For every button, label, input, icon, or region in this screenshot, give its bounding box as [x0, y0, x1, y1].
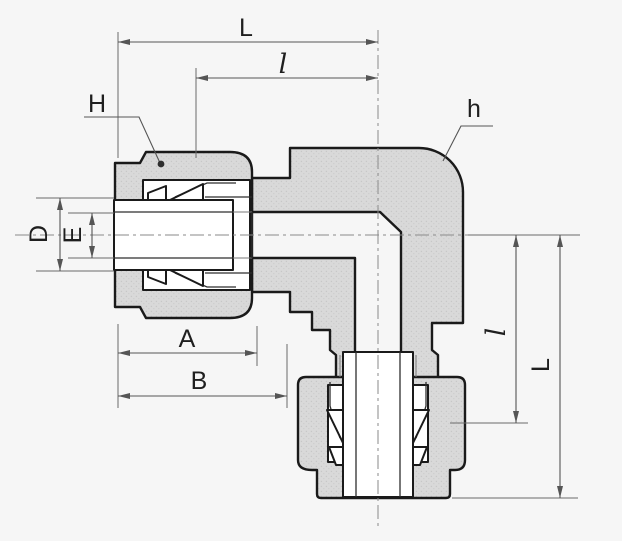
arrow-E-top [89, 213, 95, 225]
label-H: H [88, 90, 106, 118]
label-L-right: L [527, 358, 555, 372]
label-L-top: L [239, 14, 253, 42]
arrow-E-bottom [89, 246, 95, 258]
arrow-L-right-bottom [557, 486, 563, 498]
fitting-body-group [114, 148, 465, 498]
arrow-L-left [118, 39, 130, 45]
leader-h-line [443, 126, 493, 161]
drawing-canvas: L l H h D E A B l L [0, 0, 622, 541]
label-l-top: l [279, 49, 288, 80]
arrow-D-top [57, 198, 63, 210]
label-h: h [467, 95, 481, 123]
label-B: B [191, 367, 208, 395]
fitting-diagram: L l H h D E A B l L [0, 0, 622, 541]
arrow-l-right [366, 75, 378, 81]
leader-h [443, 126, 493, 161]
arrow-A-left [118, 350, 130, 356]
arrow-D-bottom [57, 259, 63, 271]
label-l-right: l [481, 328, 512, 337]
arrow-l-right-bottom [513, 411, 519, 423]
label-E: E [59, 227, 87, 244]
leader-H-dot [158, 161, 165, 168]
arrow-A-right [245, 350, 257, 356]
arrow-B-left [118, 393, 130, 399]
arrow-B-right [275, 393, 287, 399]
label-D: D [25, 225, 53, 243]
arrow-L-right [366, 39, 378, 45]
arrow-l-left [196, 75, 208, 81]
arrow-l-right-top [513, 235, 519, 247]
label-A: A [179, 325, 196, 353]
arrow-L-right-top [557, 235, 563, 247]
